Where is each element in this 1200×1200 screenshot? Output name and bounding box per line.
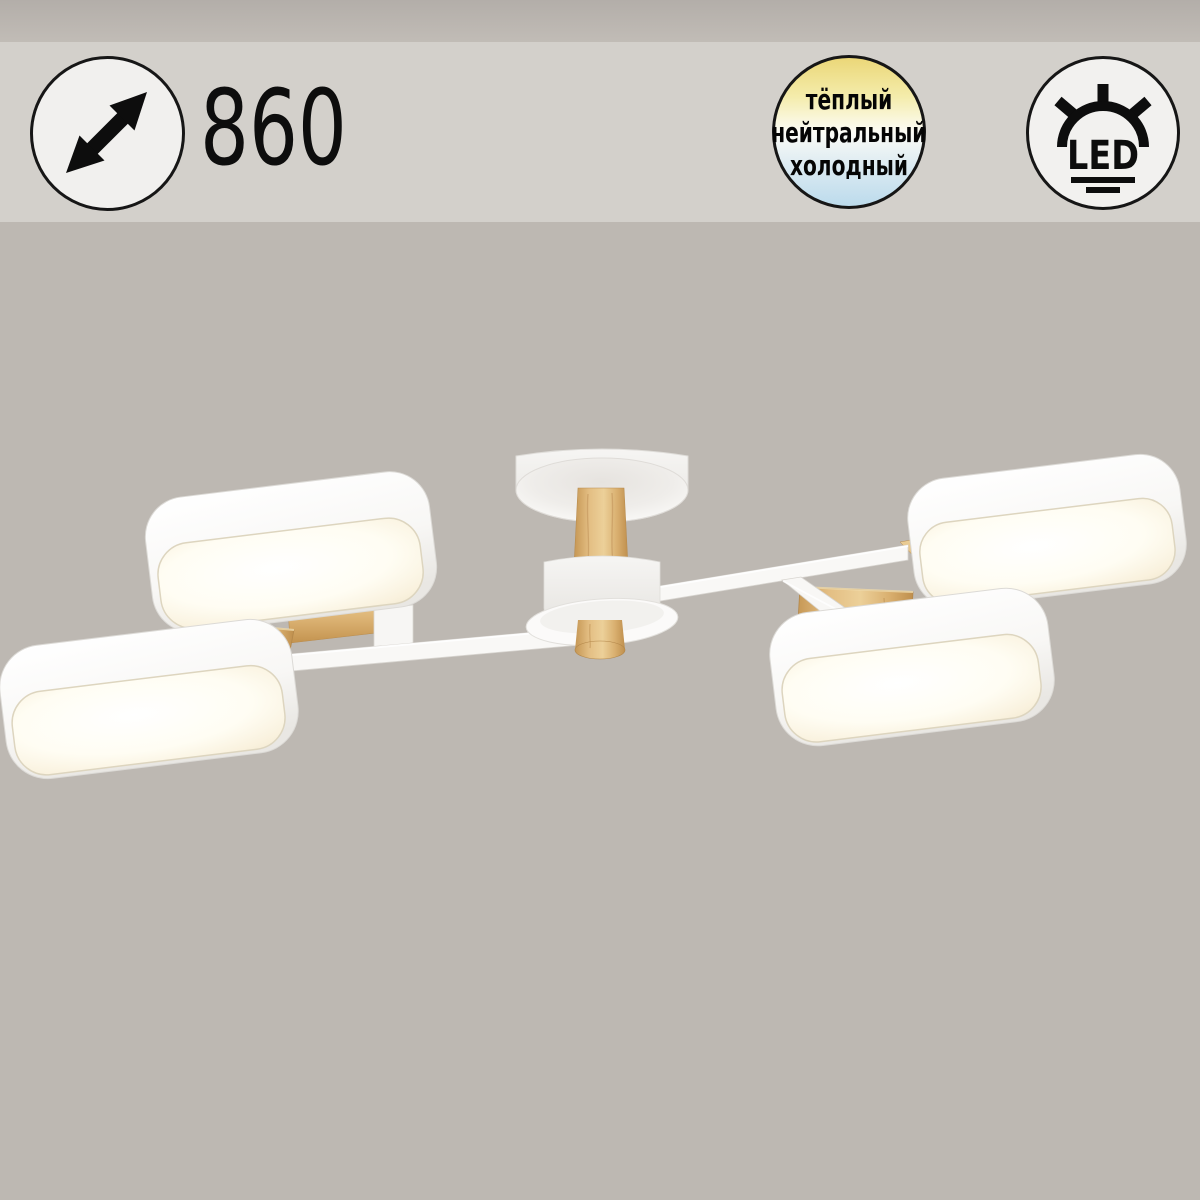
chandelier-image: [0, 0, 1200, 1200]
shade-lower-left: [0, 615, 303, 784]
arm-stub-upper-left: [374, 605, 413, 648]
wood-mounting-column: [574, 488, 628, 566]
hub-wood-finial: [575, 620, 625, 659]
product-photo: 860 тёплый нейтральный холодный LED: [0, 0, 1200, 1200]
shade-upper-right: [903, 450, 1191, 612]
